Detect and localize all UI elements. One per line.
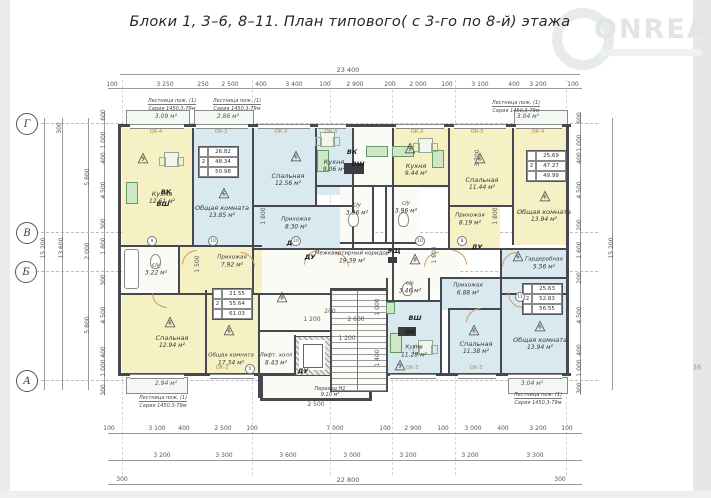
dim-line	[108, 484, 582, 485]
du-label: ДУ	[305, 253, 316, 261]
dim-label: 1 600	[577, 241, 583, 258]
triangle-number: 6	[543, 195, 547, 201]
dim-label: 100	[318, 82, 331, 88]
wall	[440, 277, 566, 279]
apartment-stamp: 25.69 247.27 49.99	[526, 150, 567, 182]
stamp-total-area: 47.27	[536, 161, 566, 171]
vk-label: ВК	[405, 328, 415, 336]
dim-label: 300	[553, 477, 566, 483]
note-line-1: Лестница пож. (1)	[492, 100, 540, 106]
apartment-stamp: 26.82 248.34 50.98	[198, 146, 239, 178]
window	[390, 374, 436, 379]
triangle-number: 6	[294, 155, 298, 161]
dim-label: 1 200	[337, 336, 356, 342]
room-area: 3.22 м²	[145, 270, 167, 278]
door-mark-circle: 10	[291, 236, 301, 246]
stamp-living-area: 25.69	[536, 151, 566, 161]
axis-circle-b: Б	[15, 261, 37, 283]
sheet-page-note: 36	[692, 365, 703, 372]
stamp-total-area: 55.64	[222, 299, 252, 309]
dim-label: 200	[577, 219, 583, 230]
door-mark-circle: 8	[457, 236, 467, 246]
vsh-label: ВШ	[352, 160, 365, 168]
dim-label: 250	[196, 82, 209, 88]
dim-label: 4 500	[577, 181, 583, 198]
dining-table	[164, 152, 179, 167]
vsh-label: ВШ	[409, 314, 422, 322]
room-mark-triangle: 9	[135, 151, 151, 166]
stove	[432, 150, 444, 168]
dim-label: 2 900	[403, 426, 422, 432]
stamp-cell	[199, 147, 208, 157]
room-label-hall-2: Прихожая8.30 м²	[281, 217, 310, 232]
window-mark: ОК-4	[532, 129, 544, 135]
stamp-extended-area: 50.98	[208, 167, 238, 177]
wall	[258, 330, 330, 332]
window-mark: ОК-3	[471, 129, 483, 135]
room-area: 11.38 м²	[460, 348, 493, 356]
dim-label: 100	[245, 426, 258, 432]
room-mark-triangle: 6	[466, 323, 482, 338]
dim-label: 5 800	[85, 316, 91, 333]
note-line-2: Серия 1450.3-79м	[514, 398, 562, 406]
wall	[258, 295, 260, 398]
drawing-sheet: ONREALT Блоки 1, 3–6, 8–11. План типовог…	[0, 0, 711, 498]
triangle-number: 6	[168, 321, 172, 327]
elevator-car	[303, 344, 323, 368]
wall	[340, 242, 420, 244]
window	[508, 374, 562, 379]
wall	[315, 185, 448, 187]
stamp-living-area: 26.82	[208, 147, 238, 157]
room-name: с/у	[399, 281, 421, 288]
du-label: ДУ	[298, 367, 309, 375]
dim-label: 2 000	[85, 242, 91, 259]
stamp-cell	[523, 284, 532, 294]
room-name: Прихожая	[281, 217, 310, 224]
stair-divider	[357, 290, 358, 390]
room-mark-triangle: 6	[532, 319, 548, 334]
dim-label: 100	[440, 82, 453, 88]
room-label-bedroom-3: Спальная12.94 м²	[156, 334, 189, 350]
room-label-bedroom-1: Спальная12.56 м²	[272, 172, 305, 188]
room-area: 3.96 м²	[346, 210, 368, 218]
room-mark-triangle: 9	[402, 141, 418, 156]
room-area: 8.43 м²	[260, 360, 293, 368]
door-mark-circle: 9	[147, 236, 157, 246]
window-mark: ОК-3	[275, 129, 287, 135]
dim-label: 3 700	[475, 149, 481, 166]
door-mark-circle: 10	[208, 236, 218, 246]
balcony-area: 2.86 м²	[216, 114, 240, 120]
room-mark-triangle: 6	[288, 149, 304, 164]
dim-label-left-subtotal: 13 600	[59, 238, 65, 259]
note-line-1: Лестница пож. (1)	[148, 98, 196, 104]
room-name: Лифт. холл	[260, 353, 293, 360]
dim-line	[108, 460, 582, 461]
stamp-cell	[213, 289, 222, 299]
dim-label: 3 300	[525, 453, 544, 459]
scan-edge-left	[0, 0, 10, 498]
vent-shaft	[386, 302, 395, 314]
dim-label: 1 600	[432, 246, 438, 263]
stamp-cell	[213, 309, 222, 319]
dim-label: 1 000	[101, 359, 107, 376]
room-area: 12.56 м²	[272, 180, 305, 188]
triangle-number: 9	[141, 157, 145, 163]
stamp-room-count: 2	[213, 299, 222, 309]
room-area: 3.46 м²	[399, 288, 421, 296]
dim-label: 1 800	[261, 207, 267, 224]
dim-label: 400	[101, 152, 107, 163]
dim-label: 3 400	[284, 82, 303, 88]
window-mark: ОК-3	[325, 129, 337, 135]
dim-label: 3 200	[398, 453, 417, 459]
fire-ladder-note: Лестница пож. (1)Серия 1450.3-79м	[148, 98, 196, 112]
dim-label: 1 400	[375, 349, 381, 366]
room-label-hall-4: Прихожая6.88 м²	[453, 283, 482, 298]
dim-label: 300	[57, 122, 63, 133]
room-label-wc-1: с/у3.22 м²	[145, 263, 167, 278]
scan-edge-right	[693, 0, 711, 498]
room-label-hall-3: Прихожая8.19 м²	[455, 213, 484, 228]
wall	[120, 245, 262, 247]
room-name: Прихожая	[455, 213, 484, 220]
fire-ladder-note: Лестница пож. (1)Серия 1450.3-79м	[213, 98, 261, 112]
wall	[428, 278, 430, 300]
du-label: ДУ	[472, 243, 483, 251]
wall	[252, 128, 254, 295]
dim-label-right-total: 15 200	[609, 238, 615, 259]
room-area: 9.10 м²	[314, 392, 345, 398]
room-area: 8.30 м²	[281, 224, 310, 232]
dim-label: 1 000	[101, 131, 107, 148]
dim-label-bottom-total: 22 800	[336, 477, 361, 484]
dim-label: 1 000	[577, 359, 583, 376]
dim-label: 200	[577, 272, 583, 283]
room-label-wc-3: с/у3.96 м²	[395, 201, 417, 216]
dining-table	[418, 138, 433, 153]
stamp-extended-area: 61.03	[222, 309, 252, 319]
dim-label-top-total: 23 400	[336, 67, 361, 74]
stamp-extended-area: 56.55	[532, 304, 562, 314]
stamp-cell	[527, 151, 536, 161]
room-label-living-2: Общая комната13.94 м²	[517, 208, 571, 224]
room-label-kitchen-2: Кухня9.06 м²	[323, 158, 345, 174]
watermark-subtitle-bar	[600, 49, 702, 56]
wall	[252, 205, 352, 207]
dim-label: 400	[577, 344, 583, 355]
stamp-total-area: 52.83	[532, 294, 562, 304]
room-name: Общая комната	[195, 204, 249, 212]
axis-circle-v: В	[16, 222, 38, 244]
dim-line	[120, 74, 580, 75]
dim-label: 3 100	[470, 82, 489, 88]
dim-label: 400	[507, 82, 520, 88]
dim-label: 3 200	[528, 82, 547, 88]
dim-label: 3 600	[278, 453, 297, 459]
dim-label: 7 000	[325, 426, 344, 432]
dim-label: 3 000	[463, 426, 482, 432]
fire-ladder-note: Лестница пож. (1)Серия 1450.3-79м	[492, 100, 540, 114]
room-name: Гардеробная	[525, 257, 563, 264]
fire-ladder-note: Лестница пож. (1)Серия 1450.3-79м	[139, 395, 187, 409]
room-name: с/у	[346, 203, 368, 210]
triangle-number: 6	[472, 329, 476, 335]
room-area: 13.85 м²	[195, 212, 249, 220]
vent-shaft	[366, 146, 388, 157]
room-mark-triangle: 8	[407, 252, 423, 267]
wall	[512, 128, 514, 245]
window	[458, 374, 496, 379]
room-label-hall-1: Прихожая7.92 м²	[217, 255, 246, 270]
wall	[448, 128, 450, 248]
core-vestibule-fill	[258, 295, 330, 335]
dim-label: 2 900	[345, 82, 364, 88]
triangle-number: 6	[538, 325, 542, 331]
dim-label: 1 500	[195, 255, 201, 272]
axis-circle-a: А	[16, 370, 38, 392]
dim-label: 200	[383, 82, 396, 88]
scan-edge-bottom	[0, 491, 711, 498]
room-fill-bedroom-1	[252, 128, 315, 205]
window-mark: ОК-3	[216, 365, 228, 371]
room-area: 5.56 м²	[525, 264, 563, 272]
triangle-number: 6	[516, 255, 520, 261]
triangle-number: 8	[413, 258, 417, 264]
wall	[118, 124, 121, 376]
window-mark: ОК-3	[411, 129, 423, 135]
dim-label: 2 600	[346, 317, 365, 323]
stamp-cell	[199, 167, 208, 177]
dim-label: 2 500	[220, 82, 239, 88]
note-line-1: Лестница пож. (1)	[139, 395, 187, 401]
room-mark-triangle: 6	[162, 315, 178, 330]
room-label-wc-2: с/у3.96 м²	[346, 203, 368, 218]
room-fill-living-2	[512, 128, 566, 245]
room-name: с/у	[395, 201, 417, 208]
room-name: Кухня	[323, 158, 345, 166]
dim-label: 400	[101, 346, 107, 357]
room-name: Прихожая	[217, 255, 246, 262]
room-mark-triangle: 6	[537, 189, 553, 204]
dim-label: 2 000	[408, 82, 427, 88]
dim-label: 300	[101, 384, 107, 395]
dim-label: 4 500	[577, 306, 583, 323]
triangle-number: 6	[222, 192, 226, 198]
balcony-area: 3.04 м²	[520, 381, 544, 387]
dim-label: 3 250	[155, 82, 174, 88]
room-label-lift-hall: Лифт. холл8.43 м²	[260, 353, 293, 368]
room-name: Спальная	[466, 176, 499, 184]
wall	[352, 128, 354, 248]
balcony-area: 2.94 м²	[154, 381, 178, 387]
dim-label: 1 000	[577, 134, 583, 151]
room-name: Спальная	[460, 340, 493, 348]
dim-label: 400	[496, 426, 509, 432]
room-name: Спальная	[272, 172, 305, 180]
dim-label: 100	[566, 82, 579, 88]
dim-label: 400	[177, 426, 190, 432]
dim-label: 1 200	[302, 317, 321, 323]
dim-label: 3 200	[152, 453, 171, 459]
room-area: 9.44 м²	[405, 170, 427, 178]
note-line-2: Серия 1450.3-79м	[213, 104, 261, 112]
door-arc	[452, 250, 467, 265]
watermark-brand: ONREALT	[594, 14, 711, 45]
room-mark-triangle: 8	[274, 290, 290, 305]
room-name: Общая комната	[513, 336, 567, 344]
window-mark: ОК-3	[215, 129, 227, 135]
dim-label: 3 100	[147, 426, 166, 432]
room-name: Кухня	[401, 345, 427, 352]
wall	[205, 290, 207, 375]
window-mark: ОК-4	[150, 129, 162, 135]
stamp-extended-area: 49.99	[536, 171, 566, 181]
apartment-stamp: 25.63 252.83 56.55	[522, 283, 563, 315]
room-label-perekhod: Переход Н19.10 м²	[314, 386, 345, 399]
wall	[448, 310, 450, 373]
stove	[126, 182, 138, 204]
stamp-living-area: 25.63	[532, 284, 562, 294]
room-area: 6.88 м²	[453, 290, 482, 298]
triangle-number: 9	[408, 147, 412, 153]
dim-label: 100	[102, 426, 115, 432]
fire-ladder-note: Лестница пож. (1)Серия 1450.3-79м	[514, 392, 562, 406]
note-line-1: Лестница пож. (1)	[514, 392, 562, 398]
balcony-area: 3.09 м²	[154, 114, 178, 120]
dim-label: 200	[323, 309, 336, 315]
dim-label: 3 000	[342, 453, 361, 459]
window	[130, 374, 184, 379]
room-area: 7.92 м²	[217, 262, 246, 270]
door-mark-circle: 5	[245, 364, 255, 374]
dim-label: 1 800	[493, 207, 499, 224]
wall	[440, 278, 442, 373]
room-label-bedroom-4: Спальная11.38 м²	[460, 340, 493, 356]
stamp-living-area: 21.55	[222, 289, 252, 299]
dim-label: 3 200	[528, 426, 547, 432]
room-area: 12.94 м²	[156, 342, 189, 350]
dim-label: 5 800	[85, 168, 91, 185]
dim-label: 1 800	[101, 237, 107, 254]
room-name: Прихожая	[453, 283, 482, 290]
vsh-label: ВШ	[157, 200, 170, 208]
room-label-wardrobe: Гардеробная5.56 м²	[525, 257, 563, 272]
room-label-corridor: Межквартирный коридор19.39 м²	[315, 251, 389, 266]
dim-label: 400	[577, 152, 583, 163]
dim-label: 3 200	[460, 453, 479, 459]
room-area: 13.94 м²	[517, 216, 571, 224]
stamp-cell	[523, 304, 532, 314]
room-label-living-1: Общая комната13.85 м²	[195, 204, 249, 220]
room-label-bedroom-2: Спальная11.44 м²	[466, 176, 499, 192]
room-name: Спальная	[156, 334, 189, 342]
dim-label: 1 000	[375, 298, 381, 315]
wall	[192, 128, 194, 245]
dim-label: 100	[436, 426, 449, 432]
drawing-title: Блоки 1, 3–6, 8–11. План типового( с 3-г…	[110, 14, 590, 30]
stamp-room-count: 2	[199, 157, 208, 167]
dim-label: 100	[105, 82, 118, 88]
stamp-room-count: 2	[527, 161, 536, 171]
note-line-2: Серия 1450.3-79м	[139, 401, 187, 409]
vk-label: ВК	[161, 188, 171, 196]
room-area: 19.39 м²	[315, 258, 389, 266]
room-mark-triangle: 6	[221, 323, 237, 338]
triangle-number: 8	[280, 296, 284, 302]
room-name: Межквартирный коридор	[315, 251, 389, 258]
dim-label: 2 500	[306, 402, 325, 408]
dim-label: 600	[101, 109, 107, 120]
stamp-total-area: 48.34	[208, 157, 238, 167]
wall	[385, 185, 387, 242]
axis-circle-g: Г	[16, 113, 38, 135]
door-mark-circle: 10	[415, 236, 425, 246]
room-name: Кухня	[405, 162, 427, 170]
window	[210, 374, 254, 379]
room-area: 13.94 м²	[513, 344, 567, 352]
dim-label-left-total: 15 200	[41, 238, 47, 259]
room-area: 3.96 м²	[395, 208, 417, 216]
dim-line	[108, 88, 582, 89]
stamp-cell	[527, 171, 536, 181]
dim-label: 4 500	[101, 181, 107, 198]
dim-label: 100	[560, 426, 573, 432]
dim-label: 300	[101, 274, 107, 285]
room-label-wc-4: с/у3.46 м²	[399, 281, 421, 296]
apartment-stamp: 21.55 255.64 61.03	[212, 288, 253, 320]
wall	[448, 205, 512, 207]
room-mark-triangle: 6	[510, 249, 526, 264]
window-mark: ОК-3	[406, 365, 418, 371]
triangle-number: 9	[398, 364, 402, 370]
room-area: 8.19 м²	[455, 220, 484, 228]
triangle-number: 6	[227, 329, 231, 335]
room-area: 11.44 м²	[466, 184, 499, 192]
window-mark: ОК-3	[470, 365, 482, 371]
dim-label: 2 500	[213, 426, 232, 432]
note-line-2: Серия 1450.3-79м	[492, 106, 540, 114]
note-line-2: Серия 1450.3-79м	[148, 104, 196, 112]
room-label-kitchen-3: Кухня9.44 м²	[405, 162, 427, 178]
room-area: 9.06 м²	[323, 166, 345, 174]
electrical-panel	[388, 257, 397, 263]
dim-label: 300	[115, 477, 128, 483]
room-name: с/у	[145, 263, 167, 270]
door-mark-circle: 11	[515, 292, 525, 302]
balcony-area: 3.04 м²	[516, 114, 540, 120]
dim-label: 3 300	[214, 453, 233, 459]
room-name: Общая комната	[517, 208, 571, 216]
esh-label: ЭЩ	[387, 247, 400, 255]
dim-label: 600	[577, 112, 583, 123]
room-mark-triangle: 6	[216, 186, 232, 201]
dim-label: 400	[254, 82, 267, 88]
room-name: Общая комната	[208, 353, 254, 360]
bathtub	[124, 249, 139, 289]
dim-label: 100	[378, 426, 391, 432]
dim-label: 4 500	[101, 306, 107, 323]
dim-label: 300	[101, 218, 107, 229]
vk-label: ВК	[347, 148, 357, 156]
dim-label: 300	[577, 382, 583, 393]
wall	[178, 245, 180, 295]
note-line-1: Лестница пож. (1)	[213, 98, 261, 104]
room-label-living-4: Общая комната13.94 м²	[513, 336, 567, 352]
dim-line	[108, 433, 582, 434]
wall	[372, 185, 374, 242]
